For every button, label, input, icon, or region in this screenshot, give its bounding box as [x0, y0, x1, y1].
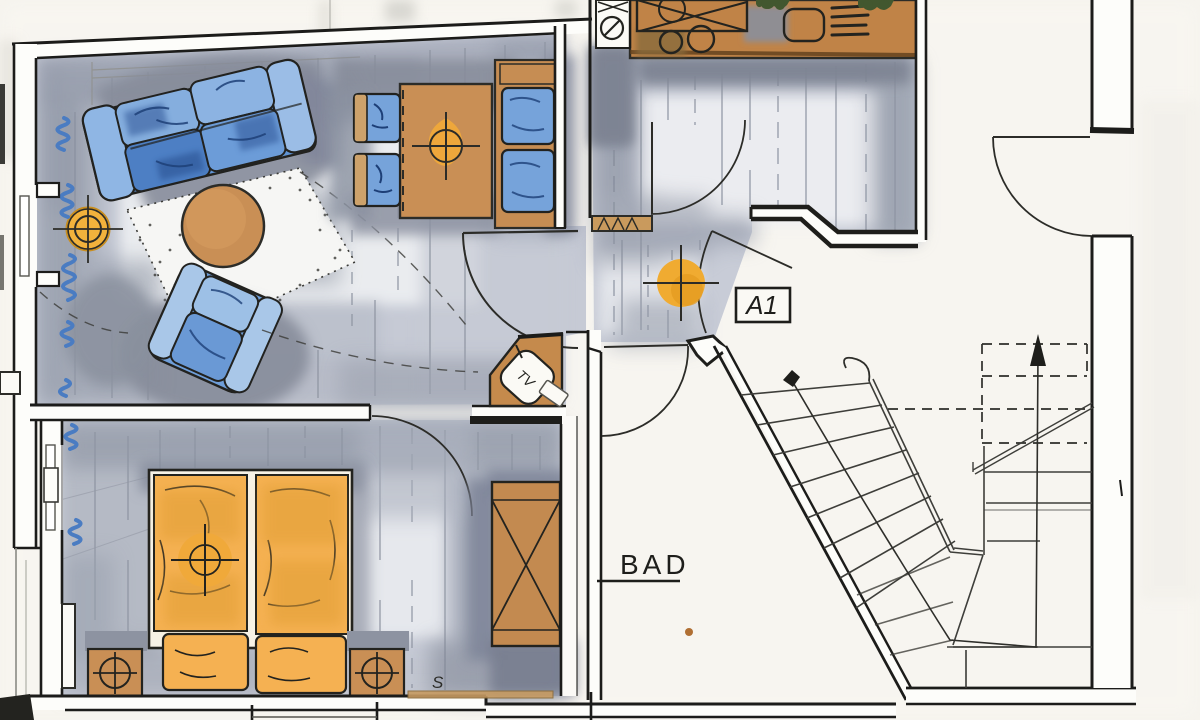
svg-text:S: S — [432, 673, 444, 692]
svg-text:A1: A1 — [744, 290, 778, 320]
svg-text:BAD: BAD — [620, 549, 690, 580]
